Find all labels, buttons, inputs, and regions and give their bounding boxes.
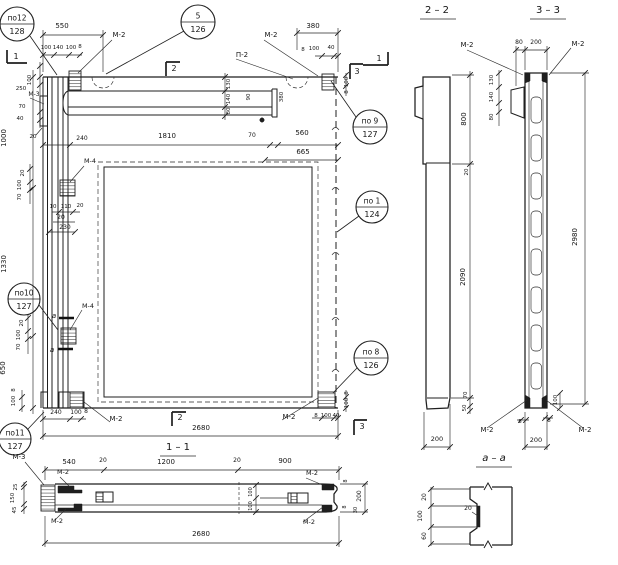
section-3-3-view bbox=[511, 19, 566, 408]
position-callout: по12128 bbox=[0, 7, 57, 75]
dim-label: М-2 bbox=[282, 413, 295, 421]
dim-label: 8 bbox=[342, 505, 348, 508]
dim-label: 100 bbox=[417, 510, 424, 522]
embed-plate-m2-bottom-left bbox=[70, 392, 83, 408]
dim-label: 1330 bbox=[0, 255, 8, 273]
dim-label: 100 bbox=[27, 74, 33, 85]
dim-label: 100 bbox=[11, 395, 17, 406]
dim-label: М-2 bbox=[57, 468, 69, 476]
dim-label: 80 bbox=[515, 39, 523, 46]
callout-mark: по 9 bbox=[362, 117, 379, 126]
dim-label: 100 bbox=[248, 487, 254, 497]
dim-label: М-3 bbox=[28, 91, 39, 98]
callout-mark: по 1 bbox=[364, 197, 381, 206]
opening-dashed-outline bbox=[98, 162, 318, 402]
dim-label: 100 bbox=[321, 413, 332, 419]
dim-label: 8 bbox=[84, 408, 88, 415]
horizontal-dim-lines bbox=[43, 33, 553, 543]
lifting-sleeve-right bbox=[288, 493, 308, 503]
dim-label: М-2 bbox=[303, 518, 315, 526]
dim-label: 200 bbox=[431, 435, 443, 443]
callout-sheet-number: 127 bbox=[7, 442, 22, 451]
end-embed-m3 bbox=[41, 485, 55, 511]
position-callout: по11127 bbox=[0, 412, 44, 455]
dim-label: 250 bbox=[16, 86, 27, 92]
detail-a-a-view bbox=[470, 467, 512, 548]
dim-label: 560 bbox=[295, 129, 308, 137]
dim-label: 70 bbox=[463, 391, 469, 398]
callout-sheet-number: 128 bbox=[9, 27, 24, 36]
dim-label: 8 bbox=[78, 44, 82, 50]
detail-a-a-outline bbox=[470, 487, 512, 545]
dim-label: 130 bbox=[489, 74, 495, 85]
dim-label: 20 bbox=[421, 493, 428, 501]
dim-label: 8 bbox=[344, 391, 350, 395]
position-callout: по 8126 bbox=[333, 341, 388, 393]
panel-outline bbox=[43, 77, 338, 408]
top-beam bbox=[63, 89, 277, 117]
edge-bracket-p2 bbox=[511, 87, 524, 118]
dim-label: 150 bbox=[10, 492, 16, 503]
dim-label: 30 bbox=[353, 507, 359, 513]
dim-label: 900 bbox=[278, 457, 291, 465]
dim-label: 240 bbox=[50, 409, 62, 416]
callout-mark: по11 bbox=[5, 429, 24, 438]
callout-sheet-number: 124 bbox=[364, 210, 379, 219]
dim-label: 50 bbox=[462, 404, 468, 411]
dim-label: 20 bbox=[19, 319, 25, 326]
callout-leader bbox=[337, 216, 359, 232]
panel-left-edge-layers bbox=[40, 77, 68, 408]
section-mark-1: 1 bbox=[376, 54, 381, 63]
embed-m2-bottom-corners bbox=[525, 395, 547, 408]
dim-label: а bbox=[50, 346, 54, 354]
opening bbox=[104, 167, 312, 397]
dim-label: 800 bbox=[460, 112, 468, 125]
section-2-2-view bbox=[415, 19, 456, 409]
panel-shop-drawing: 5501001401008М-2П-2М-2380810040121310025… bbox=[0, 0, 618, 565]
dim-label: 100 bbox=[17, 179, 23, 190]
dim-label: 40 bbox=[17, 116, 24, 122]
callout-sheet-number: 126 bbox=[363, 361, 378, 370]
dim-label: 80 bbox=[489, 113, 495, 120]
detail-break-marks bbox=[484, 483, 492, 548]
embed-tab-bottom-right bbox=[322, 505, 332, 512]
lifting-sleeve-left bbox=[96, 492, 113, 502]
section-2-2-profile bbox=[415, 77, 450, 409]
main-elevation-view bbox=[40, 71, 339, 408]
dim-label: 10 bbox=[50, 204, 57, 210]
position-callout: по 9127 bbox=[331, 81, 387, 144]
callout-sheet-number: 127 bbox=[362, 130, 377, 139]
callout-mark: по10 bbox=[14, 289, 33, 298]
dim-label: 20 bbox=[464, 505, 472, 512]
callout-mark: 5 bbox=[196, 12, 201, 21]
dim-label: 230 bbox=[59, 224, 71, 231]
dim-label: М-2 bbox=[460, 41, 473, 49]
hollow-core-voids bbox=[531, 97, 542, 389]
dim-label: 200 bbox=[356, 490, 363, 502]
dim-label: 200 bbox=[530, 436, 542, 444]
dim-label: 100 bbox=[41, 45, 52, 51]
section-title: 2 – 2 bbox=[425, 5, 449, 16]
dim-label: 45 bbox=[12, 506, 18, 513]
dim-label: 100 bbox=[70, 409, 82, 416]
dim-label: 130 bbox=[226, 78, 232, 89]
lifting-loop-arcs bbox=[92, 77, 308, 88]
section-mark-3: 3 bbox=[359, 422, 364, 431]
section-2-2-inner-lines bbox=[423, 86, 450, 398]
section-3-3-inner-walls bbox=[529, 78, 543, 403]
dim-label: М-2 bbox=[578, 426, 591, 434]
dimension-labels: 5501001401008М-2П-2М-2380810040121310025… bbox=[0, 5, 592, 540]
callout-sheet-number: 126 bbox=[190, 25, 205, 34]
dim-label: М-2 bbox=[109, 415, 122, 423]
dim-label: 140 bbox=[53, 45, 64, 51]
embed-plate-m4-lower bbox=[61, 328, 76, 344]
dim-label: 8 bbox=[11, 388, 17, 392]
dim-label: 20 bbox=[99, 457, 107, 464]
dim-label: 540 bbox=[62, 458, 75, 466]
dim-label: М-2 bbox=[480, 426, 493, 434]
dim-label: М-2 bbox=[51, 517, 63, 525]
dim-label: 70 bbox=[16, 343, 22, 350]
dim-label: 2980 bbox=[571, 228, 579, 246]
dim-label: М-2 bbox=[112, 31, 125, 39]
dim-label: 60 bbox=[421, 532, 428, 540]
dim-label: 1000 bbox=[0, 129, 8, 147]
dim-label: 8 bbox=[301, 47, 305, 53]
dim-label: 2680 bbox=[192, 530, 210, 538]
dim-label: 20 bbox=[20, 169, 26, 176]
dim-label: 40 bbox=[333, 413, 340, 419]
callout-leader bbox=[333, 368, 357, 393]
embed-plate-m2-top-left bbox=[69, 71, 81, 90]
dim-label: 20 bbox=[233, 457, 241, 464]
dim-label: 100 bbox=[309, 46, 320, 52]
callout-mark: по12 bbox=[7, 14, 26, 23]
dim-label: 100 bbox=[344, 397, 350, 408]
section-title: 1 – 1 bbox=[166, 442, 190, 453]
dim-label: М-2 bbox=[306, 469, 318, 477]
dim-label: 2090 bbox=[459, 268, 467, 286]
embed-tab-top-right bbox=[322, 484, 334, 490]
dim-label: М-4 bbox=[82, 302, 94, 310]
dim-label: 110 bbox=[61, 204, 72, 210]
dim-label: 8 bbox=[314, 413, 318, 419]
section-1-1-view bbox=[41, 456, 337, 514]
dim-label: 100 bbox=[16, 329, 22, 340]
groove-key-strip bbox=[477, 506, 480, 527]
dimension-lines bbox=[7, 28, 589, 547]
dim-label: 20 bbox=[57, 214, 65, 221]
dim-label: 20 bbox=[464, 168, 470, 175]
dim-label: 90 bbox=[246, 93, 252, 100]
dim-label: 140 bbox=[226, 93, 232, 104]
dim-label: 380 bbox=[279, 91, 285, 102]
dim-label: 80 bbox=[226, 107, 232, 114]
section-title: 3 – 3 bbox=[536, 5, 560, 16]
dim-label: М-2 bbox=[264, 31, 277, 39]
dim-label: 20 bbox=[30, 134, 37, 140]
dim-label: 665 bbox=[296, 148, 309, 156]
dim-label: М-4 bbox=[84, 157, 96, 165]
section-mark-3: 3 bbox=[354, 67, 359, 76]
dim-label: 100 bbox=[344, 76, 350, 87]
dim-label: 40 bbox=[328, 45, 335, 51]
dim-label: 8 bbox=[547, 418, 551, 424]
anchor-dot bbox=[260, 118, 264, 122]
embed-tab-top-left bbox=[58, 486, 82, 493]
dim-label: 25 bbox=[13, 483, 19, 490]
dim-label: П-2 bbox=[236, 51, 248, 59]
embed-m2-top-corners bbox=[525, 73, 547, 83]
dim-label: а bbox=[52, 312, 56, 320]
dim-label: 8 bbox=[518, 419, 522, 425]
embed-plate-m2-bottom-right bbox=[318, 392, 335, 408]
dim-label: 100 bbox=[66, 45, 77, 51]
dim-label: 380 bbox=[306, 22, 319, 30]
dim-label: 1810 bbox=[158, 132, 176, 140]
dim-label: 70 bbox=[19, 104, 26, 110]
dim-label: 100 bbox=[248, 501, 254, 511]
section-mark-1: 1 bbox=[13, 52, 18, 61]
position-callout: по 1124 bbox=[337, 191, 388, 232]
dim-label: 140 bbox=[489, 91, 495, 102]
dim-label: 1200 bbox=[157, 458, 175, 466]
embed-plate-m4-upper bbox=[60, 180, 75, 196]
dim-label: 8 bbox=[343, 479, 349, 482]
dim-label: 100 bbox=[553, 394, 559, 405]
section-cut-flags bbox=[7, 50, 388, 435]
section-title: а – а bbox=[482, 453, 506, 464]
dim-label: 70 bbox=[17, 193, 23, 200]
dim-label: 20 bbox=[77, 203, 84, 209]
position-callout: 5126 bbox=[106, 5, 215, 74]
section-mark-2: 2 bbox=[171, 64, 176, 73]
callout-mark: по 8 bbox=[363, 348, 380, 357]
section-mark-2: 2 bbox=[177, 413, 182, 422]
dim-label: 550 bbox=[55, 22, 68, 30]
embed-plate-m2-top-right bbox=[322, 74, 334, 90]
dim-label: 8 bbox=[344, 90, 350, 94]
dim-label: 200 bbox=[530, 39, 542, 46]
drawing-sheet: 5501001401008М-2П-2М-2380810040121310025… bbox=[0, 0, 618, 565]
dim-label: 650 bbox=[0, 361, 7, 374]
dim-label: 240 bbox=[76, 135, 88, 142]
dim-label: 2680 bbox=[192, 424, 210, 432]
callout-sheet-number: 127 bbox=[16, 302, 31, 311]
dim-label: М-2 bbox=[571, 40, 584, 48]
dim-label: 70 bbox=[248, 132, 256, 139]
